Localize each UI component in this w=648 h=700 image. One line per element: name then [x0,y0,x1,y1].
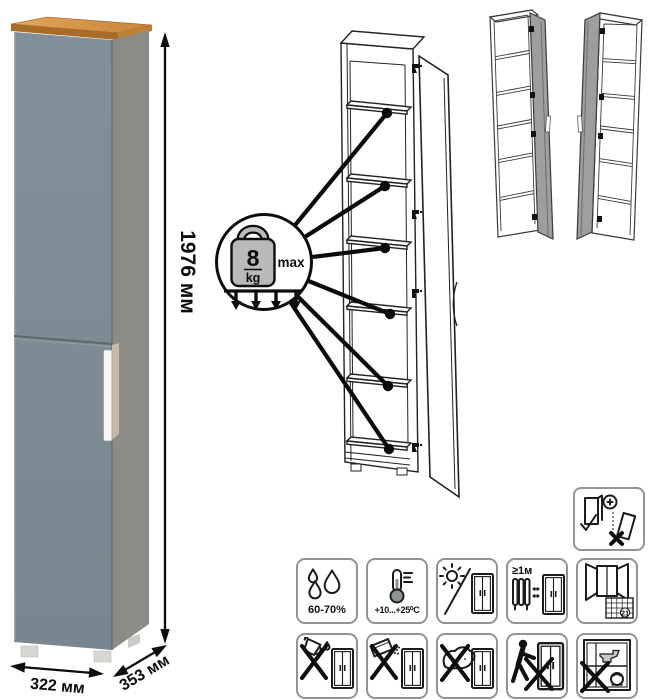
variant-door-right [490,10,553,239]
arrowhead-right-icon [89,667,105,679]
variant-door-left [577,13,642,240]
icon-ventilation: 21 [576,558,638,624]
icon-sunlight [436,558,498,624]
variant-handle [546,116,551,132]
technical-drawing [341,31,459,497]
cabinet-side-panel [112,30,149,650]
no-pouring-liquids-icon [299,637,355,695]
icon-humidity: 60-70% [296,558,358,624]
max-load-callout: 8 kg max [217,215,312,311]
icon-no-abrasives [366,633,428,699]
height-dimension: 1976 мм [160,32,199,644]
person-icon [513,640,534,681]
height-label: 1976 мм [176,230,199,314]
variant-handle [578,116,583,132]
open-window-calendar-icon: 21 [579,562,635,620]
no-heavy-items-icon [579,637,635,695]
radiator-distance-wardrobe-icon: ≥1м [509,562,565,620]
no-sponge-icon [439,637,495,695]
arrowhead-down-icon [160,629,169,644]
load-unit: kg [246,271,261,285]
kettlebell-icon [611,673,623,685]
humidity-label: 60-70% [308,605,346,616]
water-drops-icon [299,566,355,604]
calendar-icon: 21 [606,598,633,618]
thermometer-icon [369,567,425,605]
care-icon-grid: 60-70% +10...+25⁰C ≥1м [296,558,638,699]
arrowhead-left-icon [10,661,26,673]
anvil-icon [600,651,619,663]
max-label: max [277,255,305,270]
sun-crossed-wardrobe-icon [439,562,495,620]
calendar-day: 21 [621,608,629,617]
open-door-graphic [419,56,459,497]
anchor-to-wall-icon [577,492,641,546]
width-label: 322 мм [29,676,85,698]
cabinet-render [11,17,152,662]
icon-anchor-to-wall [573,487,645,551]
depth-dimension: 353 мм [110,641,172,695]
icon-heat-distance: ≥1м [506,558,568,624]
icon-temperature: +10...+25⁰C [366,558,428,624]
product-sheet: 1976 мм 322 мм 353 мм [0,0,648,700]
distance-label: ≥1м [512,565,532,577]
cabinet-foot [21,646,38,657]
arrowhead-up-icon [160,32,169,47]
icon-no-overload [576,633,638,699]
cabinet-foot [94,651,111,662]
temperature-label: +10...+25⁰C [375,606,420,615]
no-dragging-person-icon [509,637,565,695]
load-value: 8 [247,245,260,271]
no-abrasive-powder-icon [369,637,425,695]
icon-no-dragging [506,633,568,699]
door-handle [104,350,113,441]
width-dimension: 322 мм [10,661,105,698]
icon-no-scrubbing [436,633,498,699]
handle-recess [112,343,119,440]
icon-no-liquids [296,633,358,699]
